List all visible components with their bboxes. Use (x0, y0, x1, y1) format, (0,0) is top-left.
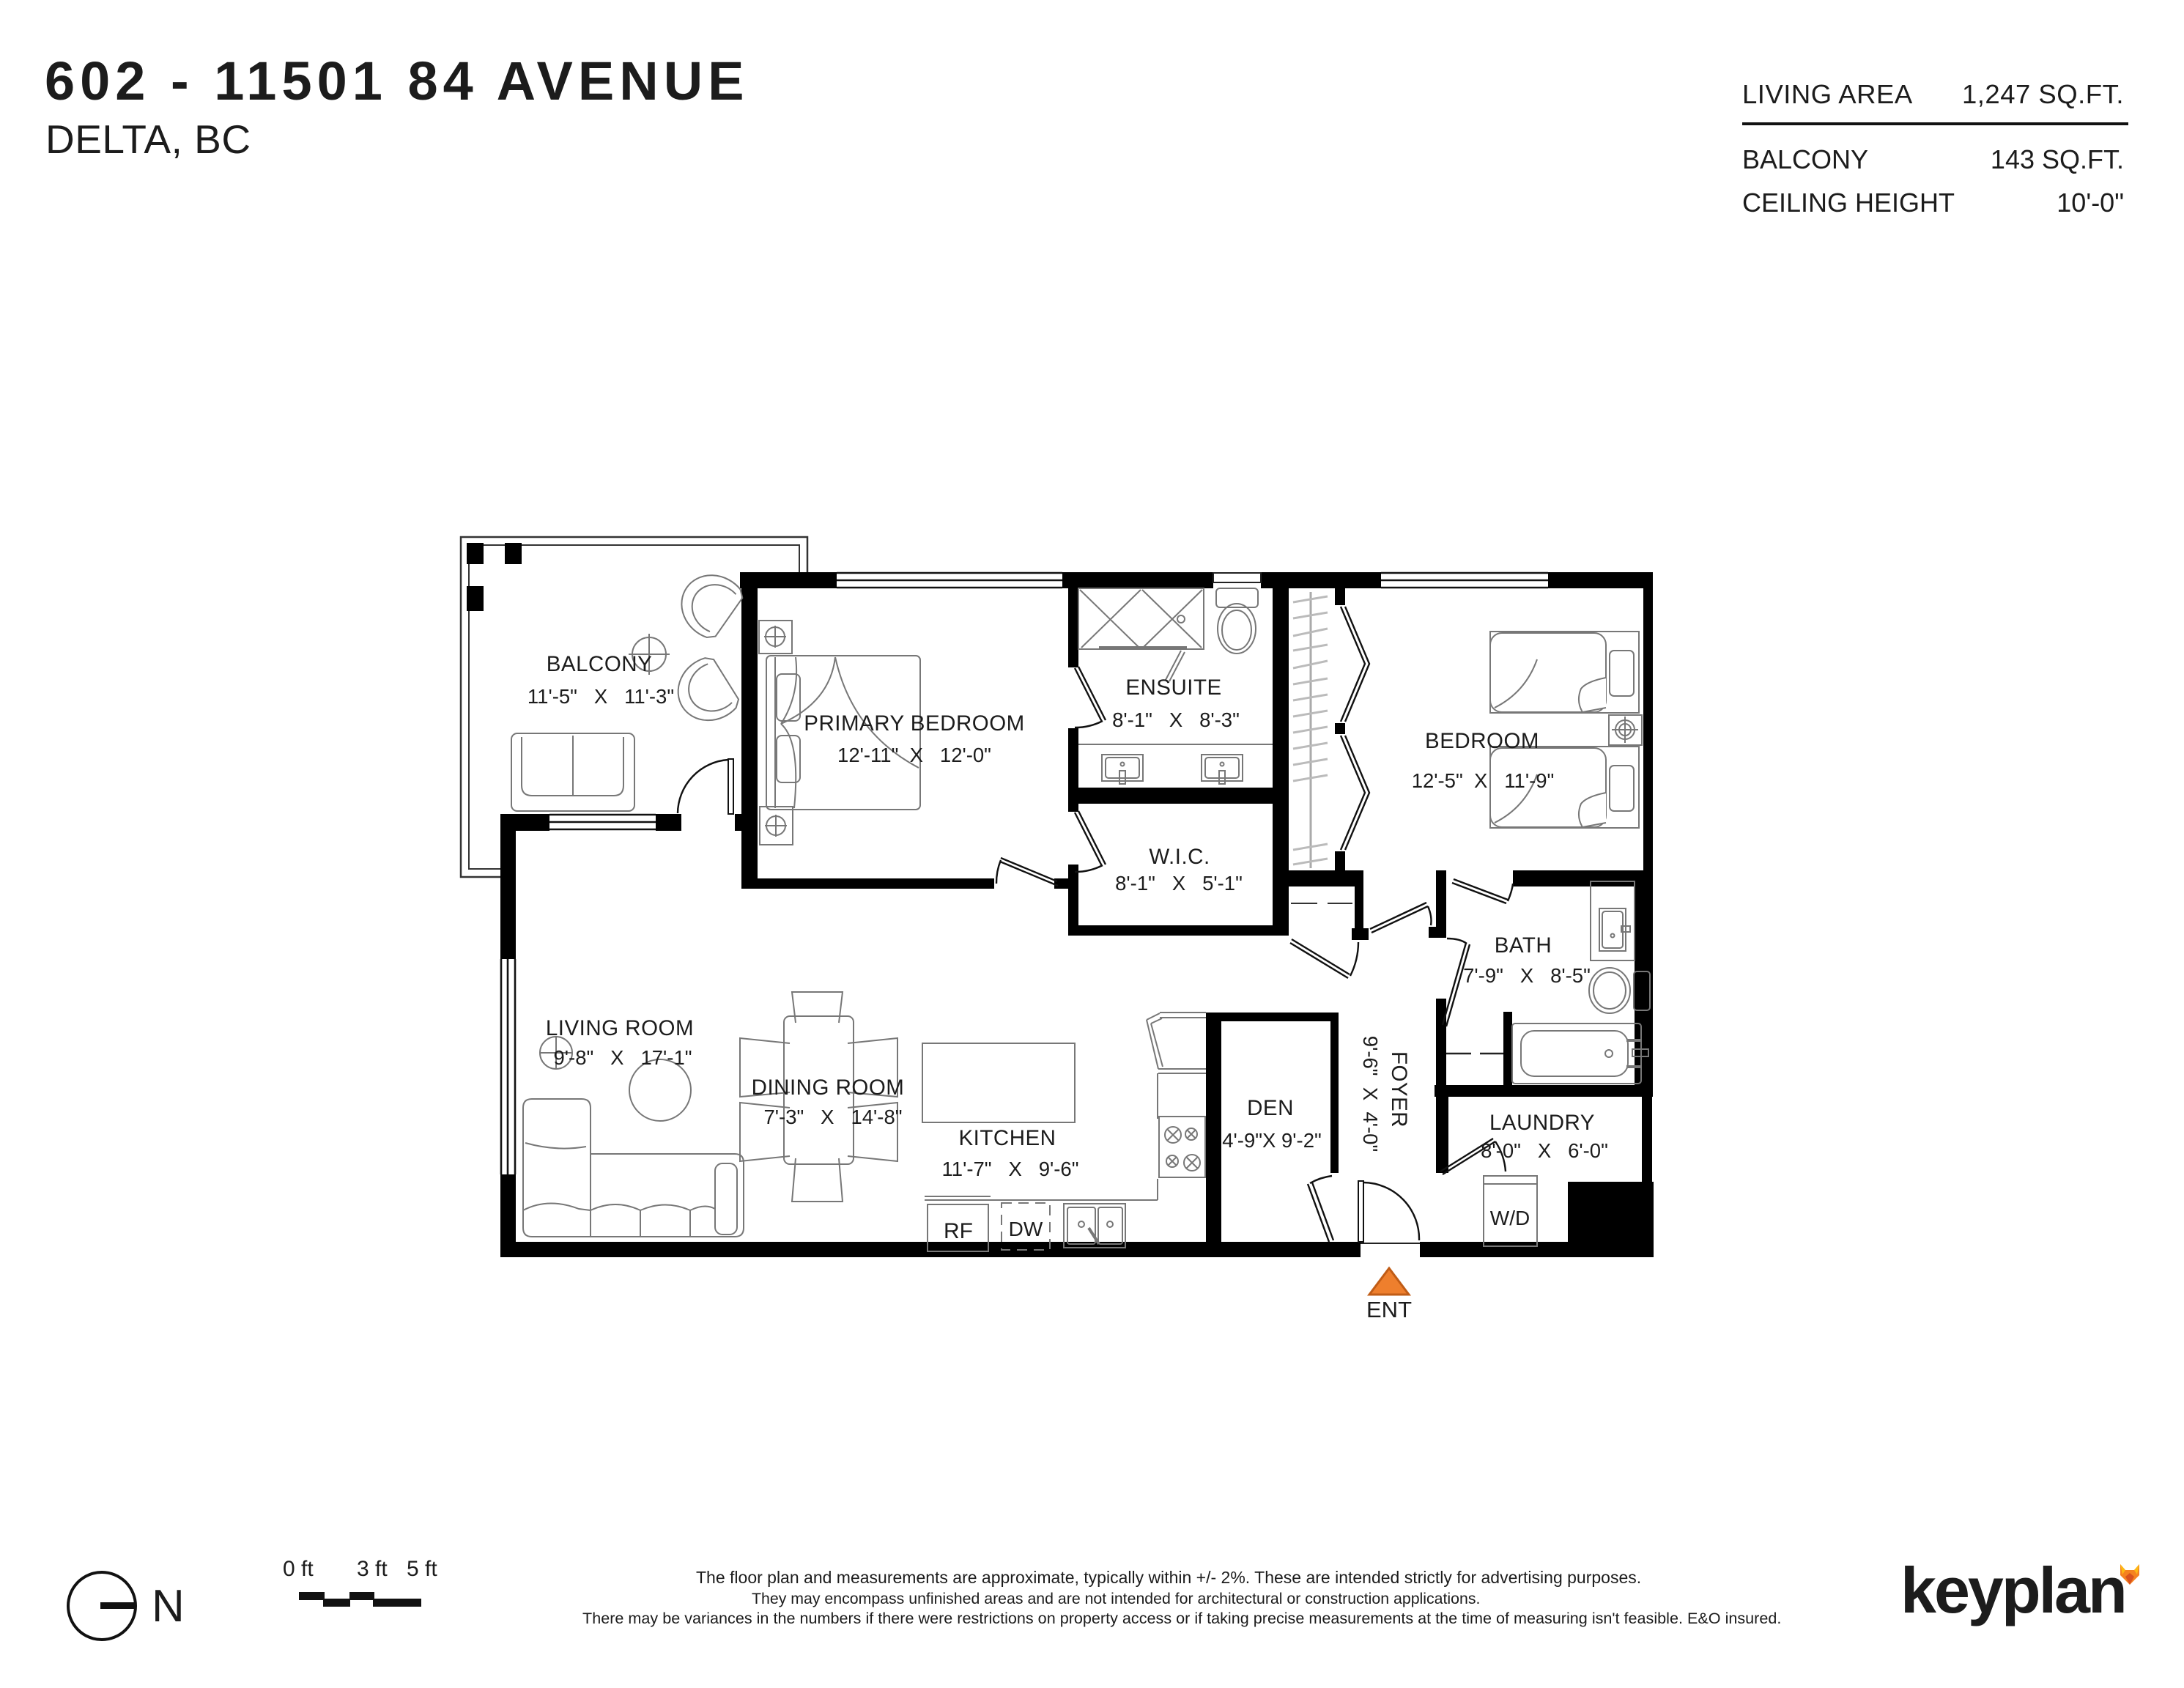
svg-text:DELTA, BC: DELTA, BC (45, 116, 251, 162)
svg-text:W.I.C.: W.I.C. (1149, 845, 1210, 869)
svg-text:BATH: BATH (1495, 933, 1552, 958)
svg-text:keyplan: keyplan (1900, 1554, 2125, 1626)
svg-text:8'-1" X 5'-1": 8'-1" X 5'-1" (1115, 872, 1243, 895)
svg-text:FOYER: FOYER (1387, 1051, 1411, 1128)
svg-text:0 ft: 0 ft (283, 1557, 314, 1581)
svg-text:8'-0" X 6'-0": 8'-0" X 6'-0" (1481, 1139, 1608, 1162)
svg-text:7'-3" X 14'-8": 7'-3" X 14'-8" (764, 1106, 903, 1128)
svg-text:They may encompass unfinished: They may encompass unfinished areas and … (752, 1590, 1480, 1607)
svg-text:11'-7" X 9'-6": 11'-7" X 9'-6" (942, 1158, 1079, 1180)
svg-text:12'-5" X 11'-9": 12'-5" X 11'-9" (1412, 769, 1555, 792)
svg-text:11'-5" X 11'-3": 11'-5" X 11'-3" (528, 685, 674, 708)
svg-text:7'-9" X 8'-5": 7'-9" X 8'-5" (1463, 964, 1591, 987)
svg-text:143 SQ.FT.: 143 SQ.FT. (1991, 144, 2124, 174)
svg-text:4'-9"X 9'-2": 4'-9"X 9'-2" (1222, 1129, 1322, 1152)
svg-text:ENSUITE: ENSUITE (1125, 675, 1221, 700)
svg-text:KITCHEN: KITCHEN (959, 1126, 1056, 1150)
svg-text:DW: DW (1009, 1218, 1043, 1240)
svg-text:LIVING AREA: LIVING AREA (1742, 79, 1913, 109)
svg-text:CEILING HEIGHT: CEILING HEIGHT (1742, 188, 1955, 218)
svg-text:DINING ROOM: DINING ROOM (752, 1076, 905, 1100)
svg-text:PRIMARY BEDROOM: PRIMARY BEDROOM (804, 711, 1024, 736)
svg-text:9'-8" X 17'-1": 9'-8" X 17'-1" (554, 1046, 692, 1069)
svg-text:12'-11" X 12'-0": 12'-11" X 12'-0" (837, 744, 991, 766)
svg-text:RF: RF (944, 1219, 973, 1243)
svg-text:W/D: W/D (1490, 1207, 1530, 1229)
svg-text:5 ft: 5 ft (407, 1557, 437, 1581)
svg-text:BALCONY: BALCONY (1742, 144, 1868, 174)
svg-text:602 - 11501 84 AVENUE: 602 - 11501 84 AVENUE (45, 51, 749, 111)
svg-text:DEN: DEN (1247, 1096, 1294, 1120)
svg-text:ENT: ENT (1366, 1297, 1412, 1322)
svg-text:3 ft: 3 ft (357, 1557, 388, 1581)
svg-text:1,247 SQ.FT.: 1,247 SQ.FT. (1962, 79, 2124, 109)
svg-text:There may be variances in the: There may be variances in the numbers if… (582, 1609, 1781, 1627)
svg-text:BALCONY: BALCONY (547, 652, 653, 676)
svg-text:N: N (152, 1581, 185, 1632)
svg-text:BEDROOM: BEDROOM (1425, 729, 1539, 753)
svg-text:8'-1" X 8'-3": 8'-1" X 8'-3" (1112, 708, 1240, 731)
svg-text:The floor plan and measurement: The floor plan and measurements are appr… (696, 1568, 1641, 1587)
svg-text:10'-0": 10'-0" (2057, 188, 2124, 218)
svg-text:9'-6" X 4'-0": 9'-6" X 4'-0" (1359, 1036, 1382, 1152)
svg-text:LAUNDRY: LAUNDRY (1489, 1111, 1595, 1135)
svg-text:LIVING ROOM: LIVING ROOM (546, 1016, 694, 1040)
